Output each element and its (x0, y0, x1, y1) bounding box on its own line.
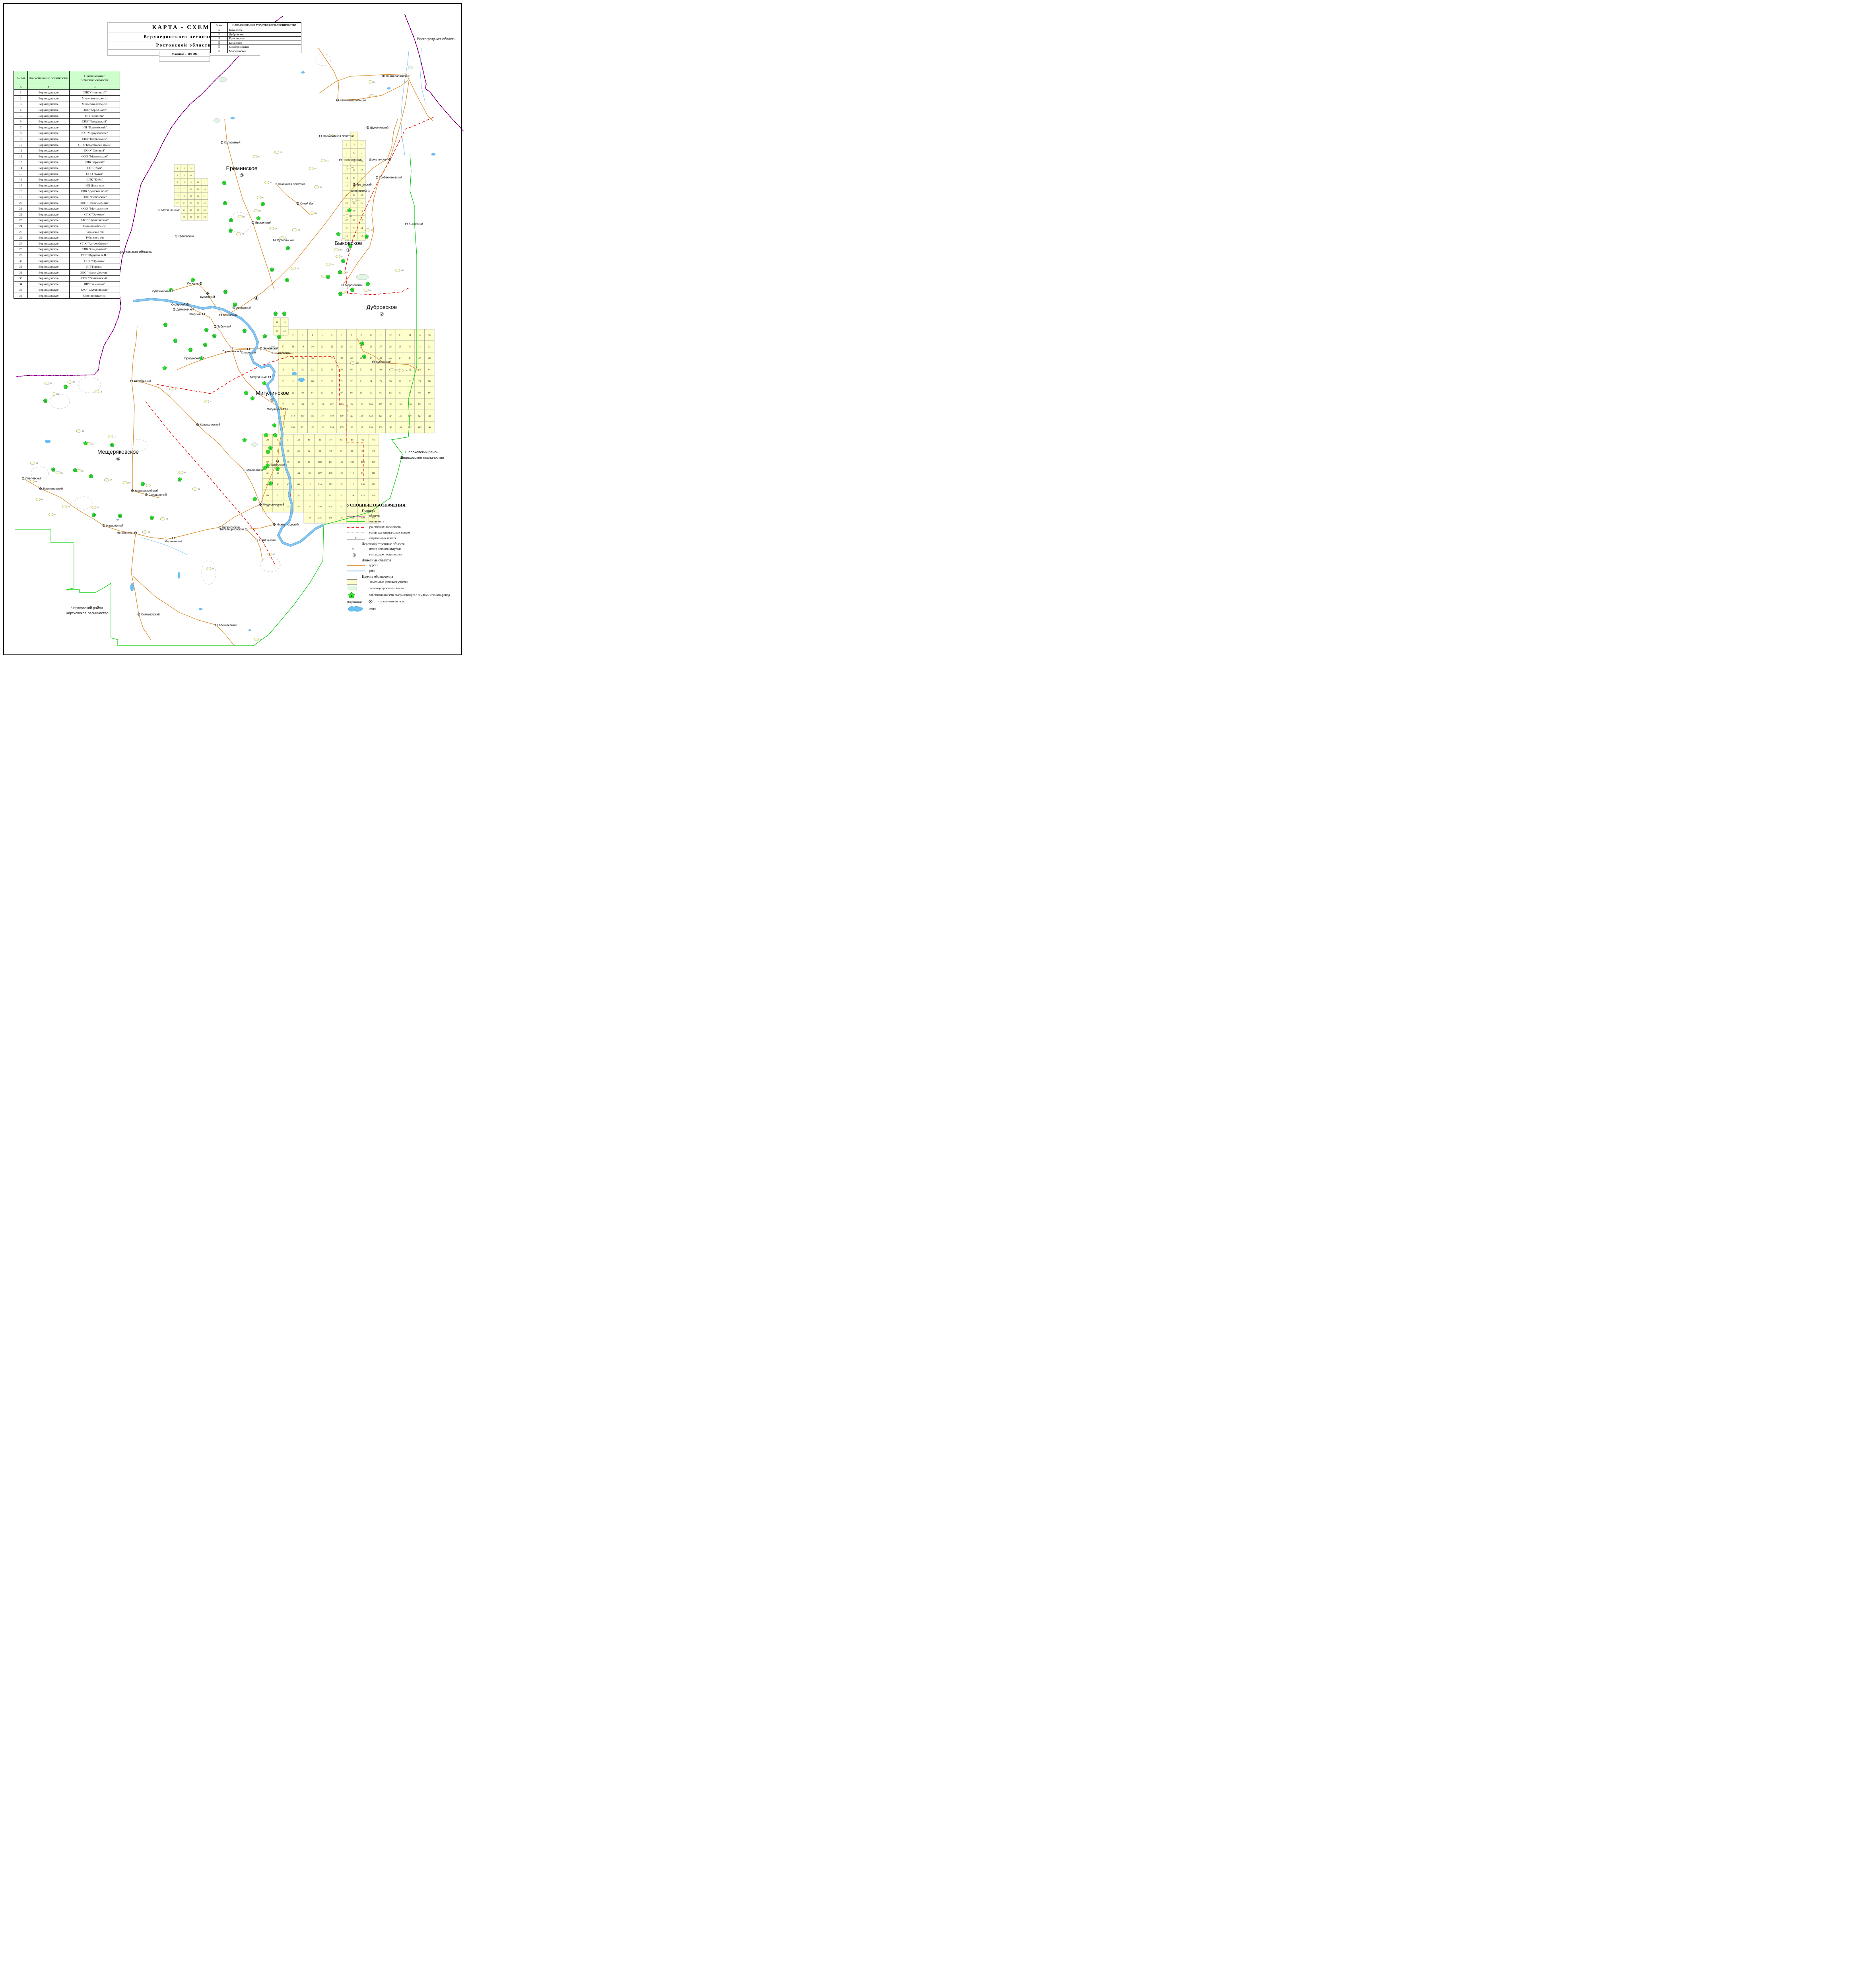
landuser-name: СПК "Свидовский" (70, 247, 120, 252)
legend-row-rivers: реки (347, 569, 460, 573)
forestry-name: Верхнедонское (28, 165, 70, 171)
forestry-name: Верхнедонское (28, 281, 70, 287)
uchastki-row: ③Ереминское (211, 37, 301, 41)
landuser-name: ЗАО "Шумилинское" (70, 217, 120, 223)
forestry-name: Верхнедонское (28, 188, 70, 194)
conditional-border-icon (347, 530, 365, 535)
row-number: 3 (14, 101, 28, 107)
landusers-row: 33ВерхнедонскоеСПК "Лопатинский" (14, 276, 120, 282)
uchastok-name: Ереминское (228, 37, 301, 41)
landuser-name: Мещеряковское с\п (70, 95, 120, 101)
row-number: 10 (14, 142, 28, 148)
landuser-name: Солонцовское с\п (70, 223, 120, 229)
map-sheet: 1234567891011121314151617181920212223242… (0, 0, 465, 658)
legend-row-plots: земельные (лесные) участки (347, 579, 460, 585)
legend-row-forestry-border: лесничеств (347, 519, 460, 524)
landusers-header-row: № п/п Наименование лесничества Наименова… (14, 71, 120, 85)
uchastki-row: ①Быковское (211, 28, 301, 33)
row-number: 21 (14, 206, 28, 212)
legend-label-kvartal-number: номер лесного квартала (369, 547, 401, 551)
owner-pentagon-icon: 1 (347, 592, 365, 598)
landusers-row: 35ВерхнедонскоеЗАО "Шумилинское" (14, 287, 120, 293)
kvartal-border-icon: 5 (347, 536, 365, 541)
row-number: 5 (14, 113, 28, 119)
landuser-name: ИП "Шурупов А.Н." (70, 252, 120, 258)
landusers-row: 28ВерхнедонскоеСПК "Свидовский" (14, 247, 120, 252)
uchastok-name: Казанское (228, 41, 301, 45)
landusers-row: 12ВерхнедонскоеООО "Мешковское" (14, 153, 120, 159)
forestry-name: Верхнедонское (28, 223, 70, 229)
row-number: 26 (14, 235, 28, 241)
road-icon (347, 563, 365, 568)
row-number: 24 (14, 223, 28, 229)
forestry-name: Верхнедонское (28, 177, 70, 182)
landusers-row: 27ВерхнедонскоеСПК "Автомобилист" (14, 241, 120, 247)
row-number: 36 (14, 293, 28, 299)
uchastki-row: ④Казанское (211, 41, 301, 45)
forestry-name: Верхнедонское (28, 252, 70, 258)
legend-row-kvartal-number: 5 номер лесного квартала (347, 547, 460, 551)
forestry-name: Верхнедонское (28, 148, 70, 153)
landuser-name: ИП "Пашковский" (70, 124, 120, 130)
landuser-name: ИП "Колосов" (70, 113, 120, 119)
landuser-name: СПК "Клён" (70, 177, 120, 182)
uchastok-number: ① (211, 28, 228, 33)
row-number: 35 (14, 287, 28, 293)
legend-borders-title: Границы (362, 509, 460, 513)
forestry-name: Верхнедонское (28, 101, 70, 107)
svg-text:Мигулинская: Мигулинская (347, 601, 362, 604)
uchastok-number: ④ (211, 41, 228, 45)
legend-label-oblast: области (369, 514, 380, 518)
uchastok-name: Дубровское (228, 32, 301, 37)
row-number: 9 (14, 136, 28, 142)
landusers-row: 6ВерхнедонскоеСПК"Придонский" (14, 118, 120, 124)
landusers-code-row: А13 (14, 85, 120, 90)
landuser-name: ООО "Поповское" (70, 194, 120, 200)
forestry-name: Верхнедонское (28, 206, 70, 212)
forestry-name: Верхнедонское (28, 107, 70, 113)
uchastok-number-icon: ① (347, 552, 365, 557)
uchastok-number: ③ (211, 37, 228, 41)
land-plot-swatch (347, 579, 357, 585)
oblast-border-icon (347, 514, 365, 518)
row-number: 19 (14, 194, 28, 200)
landuser-name: ООО "Мутилинское (70, 206, 120, 212)
landuser-name: ООО "Новая Деревня" (70, 200, 120, 206)
landusers-row: 31ВерхнедонскоеИП"Борзых" (14, 264, 120, 270)
landuser-name: ООО"Агро-Союз" (70, 107, 120, 113)
landusers-row: 19ВерхнедонскоеООО "Поповское" (14, 194, 120, 200)
row-number: 18 (14, 188, 28, 194)
landusers-col-forestry: Наименование лесничества (28, 71, 70, 85)
landusers-row: 7ВерхнедонскоеИП "Пашковский" (14, 124, 120, 130)
legend-row-uchastok-num: ① участковое лесничество (347, 552, 460, 557)
uchastok-name: Мещеряковское (228, 45, 301, 49)
uchastok-border-icon (347, 525, 365, 530)
legend-row-owners: 1 собственники земель граничащих с земля… (347, 592, 460, 598)
settlement-icon: Мигулинская (347, 599, 375, 604)
landuser-name: СПК"Комсомолец Дона" (70, 142, 120, 148)
landuser-name: СПК "Лопатинский" (70, 276, 120, 282)
landuser-name: Мещеряковское с\п (70, 101, 120, 107)
uchastki-col-name: НАИМЕНОВАНИЕ УЧАСТКОВОГО ЛЕСНИЧЕСТВА (228, 23, 301, 28)
landusers-row: 8ВерхнедонскоеКХ "Меркуловское" (14, 130, 120, 136)
landuser-name: ИП"Борзых" (70, 264, 120, 270)
uchastok-name: Мигулинское (228, 49, 301, 53)
forestry-name: Верхнедонское (28, 118, 70, 124)
landusers-row: 17ВерхнедонскоеИП Цыганков (14, 182, 120, 188)
forestry-name: Верхнедонское (28, 200, 70, 206)
code-cell: 1 (28, 85, 70, 90)
legend-label-lakes: озера (369, 607, 376, 610)
landuser-name: СПК "Луч" (70, 165, 120, 171)
landusers-table: № п/п Наименование лесничества Наименова… (14, 71, 120, 299)
code-cell: А (14, 85, 28, 90)
forestry-name: Верхнедонское (28, 142, 70, 148)
non-forest-swatch (347, 586, 357, 591)
row-number: 33 (14, 276, 28, 282)
landuser-name: ЗАО "Шумилинское" (70, 287, 120, 293)
landuser-name: Солонцовское с\п (70, 293, 120, 299)
landusers-row: 2ВерхнедонскоеМещеряковское с\п (14, 95, 120, 101)
uchastki-row: ⑤Мещеряковское (211, 45, 301, 49)
landusers-row: 34ВерхнедонскоеИП"Сакменнов" (14, 281, 120, 287)
code-cell: 3 (70, 85, 120, 90)
scale-empty-row (159, 57, 210, 61)
landusers-row: 18ВерхнедонскоеСПК "Донское поле" (14, 188, 120, 194)
row-number: 32 (14, 270, 28, 276)
legend-title: УСЛОВНЫЕ ОБОЗНАЧЕНИЯ: (347, 503, 460, 508)
legend-row-oblast: области (347, 514, 460, 518)
landuser-name: ООО "Мешковское" (70, 153, 120, 159)
legend-label-rivers: реки (369, 569, 375, 573)
landuser-name: ООО "Новая Деревня" (70, 270, 120, 276)
row-number: 34 (14, 281, 28, 287)
river-icon (347, 569, 365, 573)
row-number: 27 (14, 241, 28, 247)
landuser-name: СПК"Придонский" (70, 118, 120, 124)
forestry-name: Верхнедонское (28, 130, 70, 136)
landuser-name: СПК "Орехово" (70, 258, 120, 264)
row-number: 23 (14, 217, 28, 223)
forestry-name: Верхнедонское (28, 270, 70, 276)
row-number: 29 (14, 252, 28, 258)
legend-row-settlements: Мигулинская населенные пункты (347, 599, 460, 604)
svg-text:5: 5 (352, 548, 354, 551)
forestry-name: Верхнедонское (28, 264, 70, 270)
uchastki-table: № п/п НАИМЕНОВАНИЕ УЧАСТКОВОГО ЛЕСНИЧЕСТ… (210, 22, 301, 53)
landusers-row: 21ВерхнедонскоеООО "Мутилинское (14, 206, 120, 212)
landusers-col-user: Наименование землепользователя (70, 71, 120, 85)
legend-linear-title: Линейные объекты (362, 558, 460, 562)
landusers-col-num: № п/п (14, 71, 28, 85)
row-number: 13 (14, 159, 28, 165)
row-number: 2 (14, 95, 28, 101)
landuser-name: Казанское с\п (70, 229, 120, 235)
landuser-name: КХ "Меркуловское" (70, 130, 120, 136)
forestry-name: Верхнедонское (28, 217, 70, 223)
row-number: 8 (14, 130, 28, 136)
forestry-name: Верхнедонское (28, 171, 70, 177)
landuser-name: СПК"Станичный" (70, 90, 120, 96)
legend-row-uchastok-border: участковых лесничеств (347, 525, 460, 530)
forestry-name: Верхнедонское (28, 212, 70, 217)
landuser-name: СПК "Донское поле" (70, 188, 120, 194)
landusers-row: 3ВерхнедонскоеМещеряковское с\п (14, 101, 120, 107)
landuser-name: СПК "Дружба" (70, 159, 120, 165)
landuser-name: СПК"Тиховской-5" (70, 136, 120, 142)
forestry-name: Верхнедонское (28, 113, 70, 119)
uchastki-col-num: № п/п (211, 23, 228, 28)
svg-text:5: 5 (355, 537, 357, 540)
forestry-name: Верхнедонское (28, 247, 70, 252)
landusers-row: 10ВерхнедонскоеСПК"Комсомолец Дона" (14, 142, 120, 148)
legend-label-uchastok-border: участковых лесничеств (369, 526, 401, 529)
row-number: 30 (14, 258, 28, 264)
kvartal-number-icon: 5 (347, 547, 365, 551)
landuser-name: ИП Цыганков (70, 182, 120, 188)
landusers-row: 16ВерхнедонскоеСПК "Клён" (14, 177, 120, 182)
landuser-name: ООО "Быки" (70, 171, 120, 177)
legend-row-roads: дороги (347, 563, 460, 568)
landusers-row: 20ВерхнедонскоеООО "Новая Деревня" (14, 200, 120, 206)
row-number: 15 (14, 171, 28, 177)
legend-label-kvartal: квартальных просек (369, 537, 396, 540)
landusers-row: 29ВерхнедонскоеИП "Шурупов А.Н." (14, 252, 120, 258)
landusers-row: 22ВерхнедонскоеСПК "Орехово" (14, 212, 120, 217)
forestry-name: Верхнедонское (28, 276, 70, 282)
forestry-border-icon (347, 519, 365, 524)
uchastki-row: ⑥Мигулинское (211, 49, 301, 53)
legend-row-kvartal: 5 квартальных просек (347, 536, 460, 541)
uchastok-number: ⑥ (211, 49, 228, 53)
legend-row-conditional: условных квартальных просек (347, 530, 460, 535)
legend-label-owners: собственники земель граничащих с землями… (369, 594, 450, 597)
forestry-name: Верхнедонское (28, 258, 70, 264)
landuser-name: ИП"Сакменнов" (70, 281, 120, 287)
landusers-row: 5ВерхнедонскоеИП "Колосов" (14, 113, 120, 119)
uchastok-name: Быковское (228, 28, 301, 33)
row-number: 28 (14, 247, 28, 252)
forestry-name: Верхнедонское (28, 229, 70, 235)
uchastok-number: ⑤ (211, 45, 228, 49)
legend-other-title: Прочие обозначения (362, 575, 460, 579)
forestry-name: Верхнедонское (28, 95, 70, 101)
row-number: 22 (14, 212, 28, 217)
landuser-name: Тубянское с\п (70, 235, 120, 241)
scale-label: Масштаб 1:100 000 (159, 51, 210, 57)
map-legend: УСЛОВНЫЕ ОБОЗНАЧЕНИЯ: Границы области ле… (347, 503, 460, 613)
legend-row-lakes: озера (347, 605, 460, 613)
legend-label-roads: дороги (369, 564, 379, 567)
forestry-name: Верхнедонское (28, 90, 70, 96)
lake-icon (347, 605, 365, 613)
landusers-row: 26ВерхнедонскоеТубянское с\п (14, 235, 120, 241)
landusers-row: 30ВерхнедонскоеСПК "Орехово" (14, 258, 120, 264)
row-number: 12 (14, 153, 28, 159)
landuser-name: СПК "Автомобилист" (70, 241, 120, 247)
scale-box: Масштаб 1:100 000 (159, 51, 210, 62)
svg-text:1: 1 (351, 595, 352, 598)
row-number: 7 (14, 124, 28, 130)
landusers-row: 24ВерхнедонскоеСолонцовское с\п (14, 223, 120, 229)
landusers-row: 36ВерхнедонскоеСолонцовское с\п (14, 293, 120, 299)
row-number: 14 (14, 165, 28, 171)
legend-label-forestry-border: лесничеств (369, 520, 384, 523)
forestry-name: Верхнедонское (28, 293, 70, 299)
uchastki-row: ②Дубровское (211, 32, 301, 37)
legend-label-plots: земельные (лесные) участки (370, 580, 408, 584)
row-number: 6 (14, 118, 28, 124)
legend-label-settlements: населенные пункты (379, 600, 405, 603)
landusers-row: 13ВерхнедонскоеСПК "Дружба" (14, 159, 120, 165)
landusers-row: 32ВерхнедонскоеООО "Новая Деревня" (14, 270, 120, 276)
forestry-name: Верхнедонское (28, 235, 70, 241)
forestry-name: Верхнедонское (28, 241, 70, 247)
landusers-row: 23ВерхнедонскоеЗАО "Шумилинское" (14, 217, 120, 223)
row-number: 31 (14, 264, 28, 270)
landusers-row: 15ВерхнедонскоеООО "Быки" (14, 171, 120, 177)
uchastki-header-row: № п/п НАИМЕНОВАНИЕ УЧАСТКОВОГО ЛЕСНИЧЕСТ… (211, 23, 301, 28)
forestry-name: Верхнедонское (28, 287, 70, 293)
legend-label-uchastok-num: участковое лесничество (369, 553, 402, 556)
forestry-name: Верхнедонское (28, 124, 70, 130)
row-number: 25 (14, 229, 28, 235)
row-number: 11 (14, 148, 28, 153)
row-number: 20 (14, 200, 28, 206)
landuser-name: СПК "Орехово" (70, 212, 120, 217)
forestry-name: Верхнедонское (28, 153, 70, 159)
landusers-row: 9ВерхнедонскоеСПК"Тиховской-5" (14, 136, 120, 142)
legend-label-nonforest: нелесоустроенные земли (370, 587, 404, 590)
forestry-name: Верхнедонское (28, 159, 70, 165)
landusers-row: 14ВерхнедонскоеСПК "Луч" (14, 165, 120, 171)
uchastok-number: ② (211, 32, 228, 37)
legend-label-conditional: условных квартальных просек (369, 531, 410, 534)
landusers-row: 25ВерхнедонскоеКазанское с\п (14, 229, 120, 235)
forestry-name: Верхнедонское (28, 182, 70, 188)
row-number: 16 (14, 177, 28, 182)
landusers-row: 11ВерхнедонскоеООО" Степной" (14, 148, 120, 153)
landusers-row: 1ВерхнедонскоеСПК"Станичный" (14, 90, 120, 96)
landuser-name: ООО" Степной" (70, 148, 120, 153)
forestry-name: Верхнедонское (28, 194, 70, 200)
svg-text:①: ① (352, 553, 356, 558)
landusers-row: 4ВерхнедонскоеООО"Агро-Союз" (14, 107, 120, 113)
row-number: 4 (14, 107, 28, 113)
row-number: 1 (14, 90, 28, 96)
forestry-name: Верхнедонское (28, 136, 70, 142)
row-number: 17 (14, 182, 28, 188)
legend-row-nonforest: нелесоустроенные земли (347, 586, 460, 591)
legend-forestry-objects-title: Лесохозяйственные объекты (362, 542, 460, 546)
